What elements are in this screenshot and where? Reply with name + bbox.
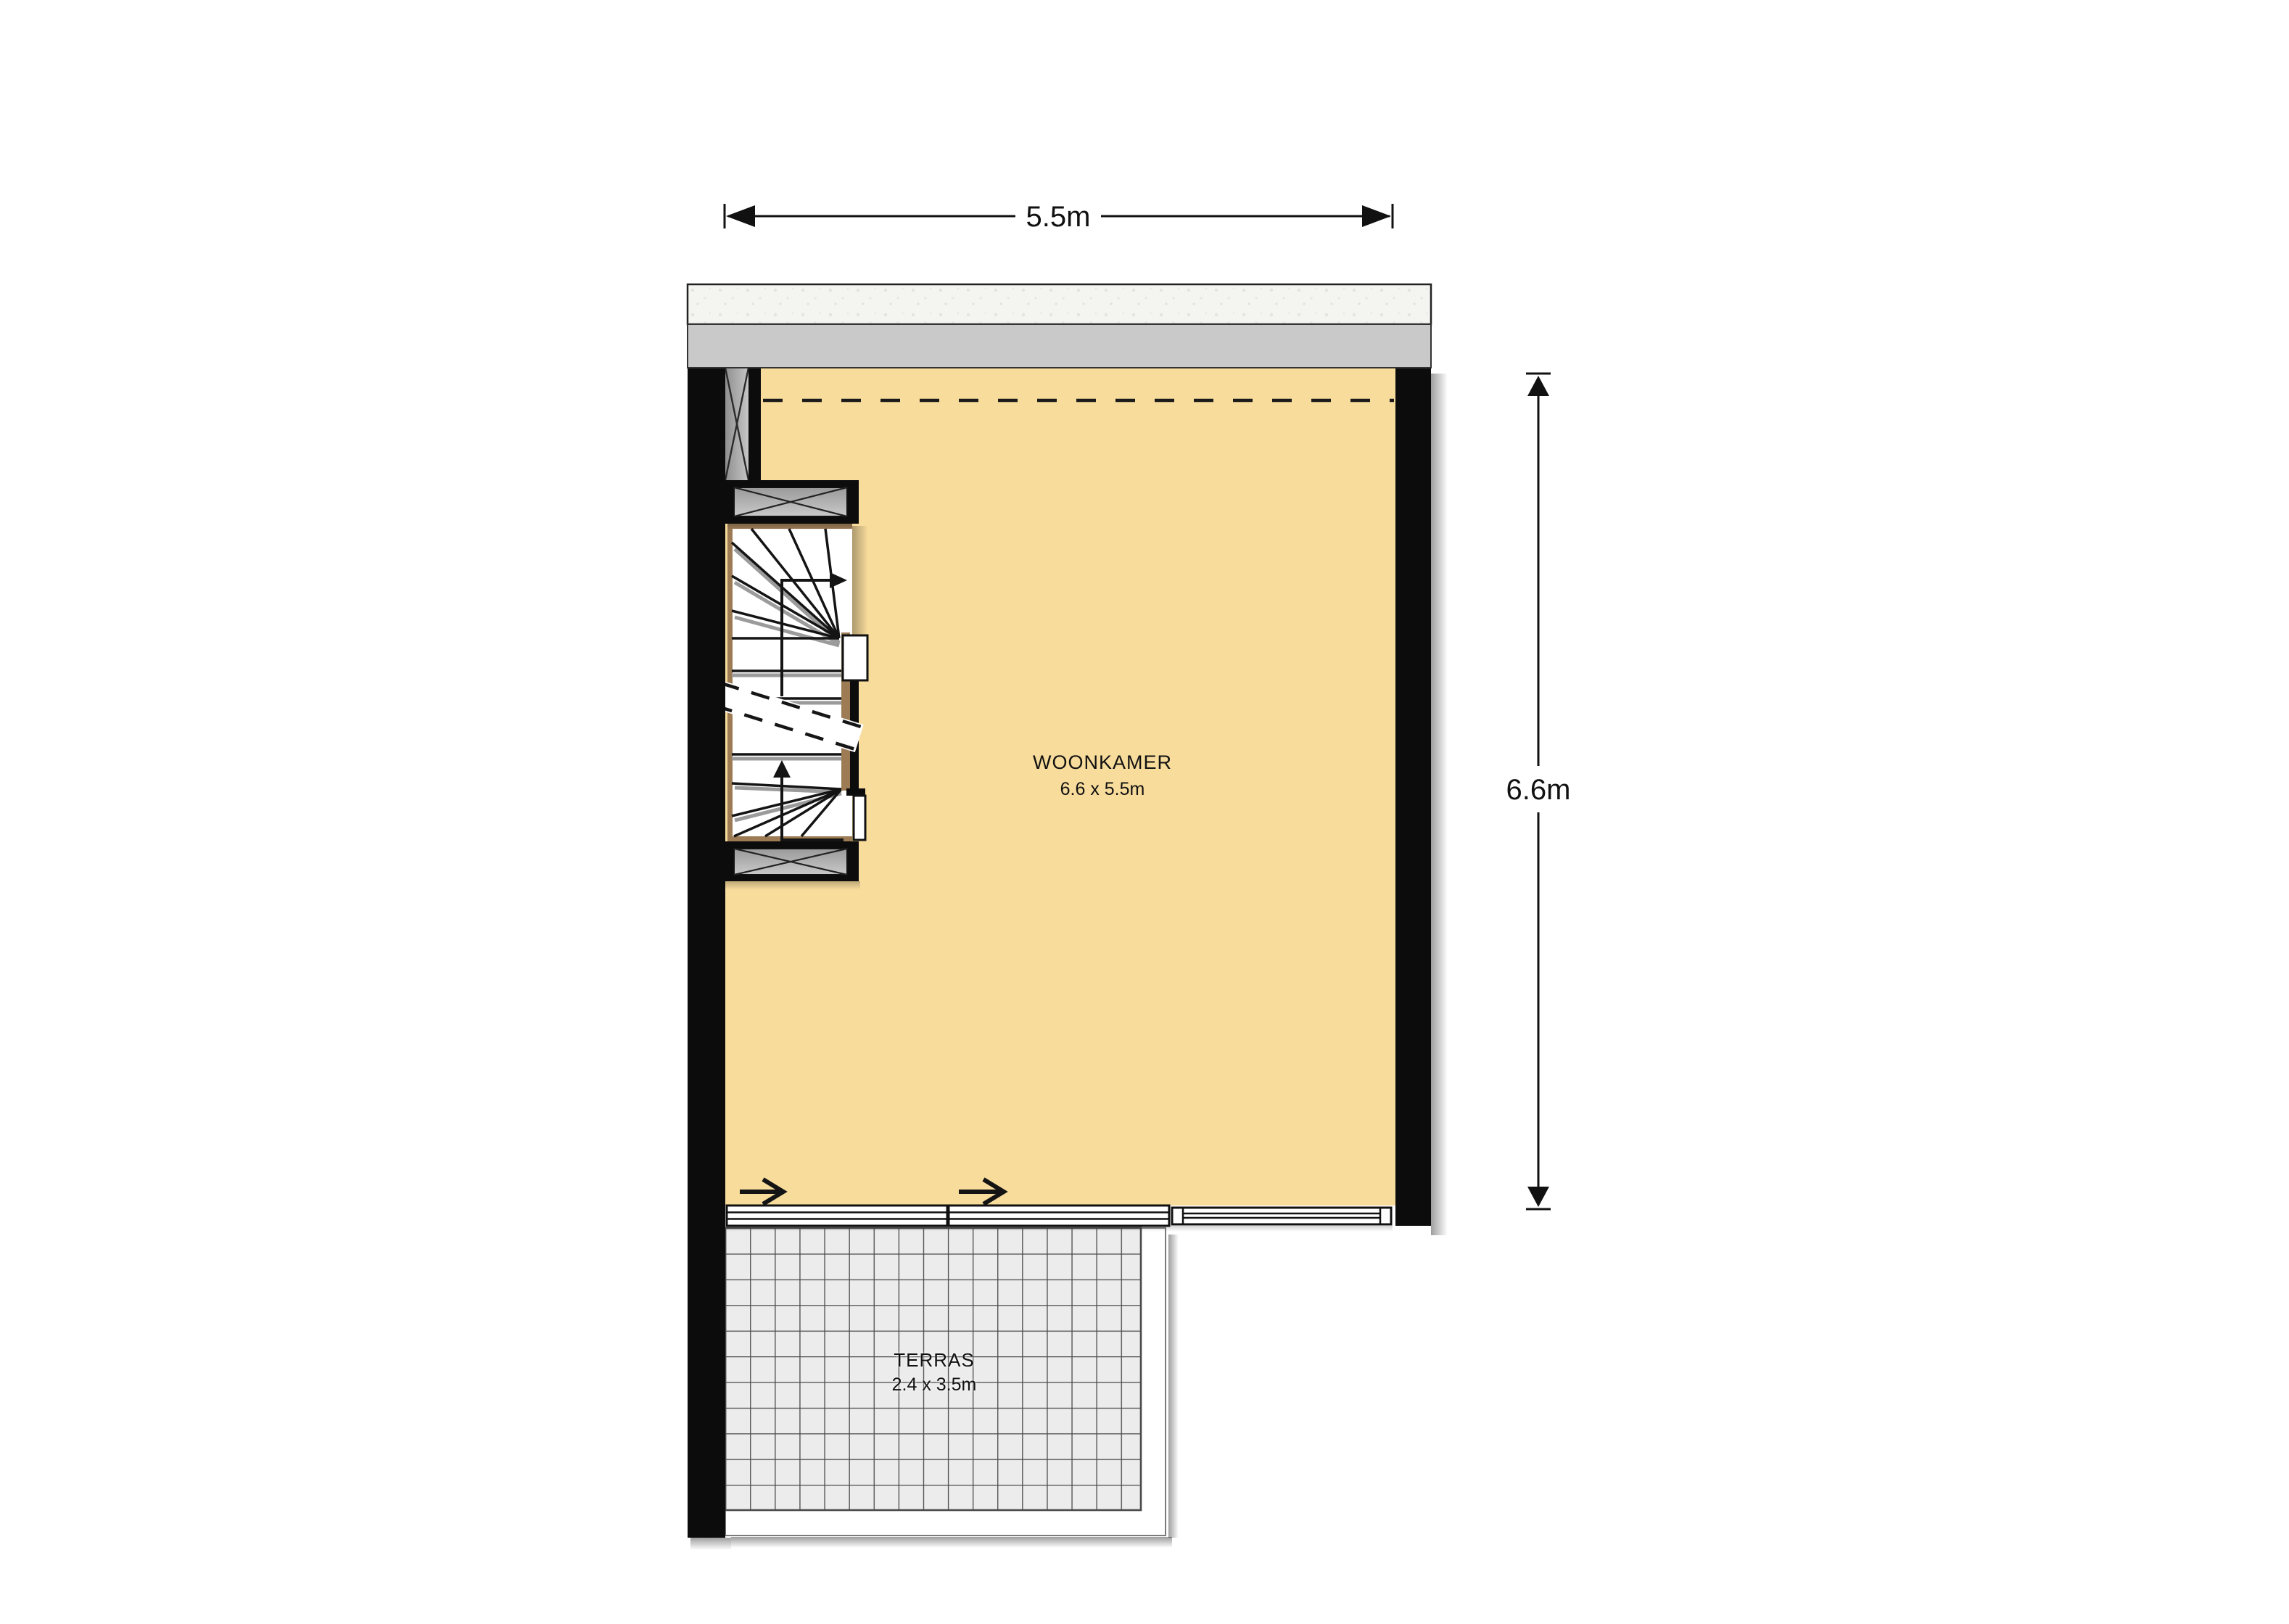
dimension-arrow-down-icon [1527, 1187, 1549, 1207]
woonkamer-size: 6.6 x 5.5m [1060, 779, 1145, 799]
facade-band [688, 324, 1431, 368]
window [1172, 1208, 1391, 1224]
dimension-arrow-left-icon [726, 205, 755, 227]
dimension-width-label: 5.5m [1026, 201, 1091, 233]
terras-size: 2.4 x 3.5m [892, 1374, 977, 1395]
right-wall-shadow [1431, 374, 1448, 1235]
stair-open-edge-shadow [852, 526, 868, 635]
floor-plan-drawing: 5.5m 6.6m WOONKAMER 6.6 x 5.5m TERRAS 2.… [0, 0, 2289, 1624]
door-panel-left [727, 1205, 947, 1226]
dimension-width: 5.5m [725, 201, 1393, 233]
shaft-wall [748, 368, 761, 480]
dimension-arrow-right-icon [1362, 205, 1391, 227]
left-wall-bottom-shadow [690, 1538, 731, 1550]
stair-bottom-shadow [725, 881, 860, 890]
woonkamer-label: WOONKAMER [1033, 751, 1172, 773]
door-panel-right [949, 1205, 1169, 1226]
floor-plan-canvas: 5.5m 6.6m WOONKAMER 6.6 x 5.5m TERRAS 2.… [0, 0, 2289, 1624]
dimension-arrow-up-icon [1527, 376, 1549, 396]
window-frame [1172, 1208, 1391, 1224]
dimension-height: 6.6m [1506, 374, 1571, 1209]
balustrade-upper [843, 635, 867, 680]
terrace-shadow-right [1168, 1235, 1179, 1538]
left-wall [688, 368, 725, 1538]
dimension-height-label: 6.6m [1506, 774, 1571, 806]
balustrade-lower [854, 796, 865, 840]
terrace-shadow-bottom [731, 1537, 1172, 1548]
terras-label: TERRAS [894, 1349, 974, 1371]
plaster-band [688, 284, 1431, 324]
right-wall [1395, 367, 1431, 1226]
